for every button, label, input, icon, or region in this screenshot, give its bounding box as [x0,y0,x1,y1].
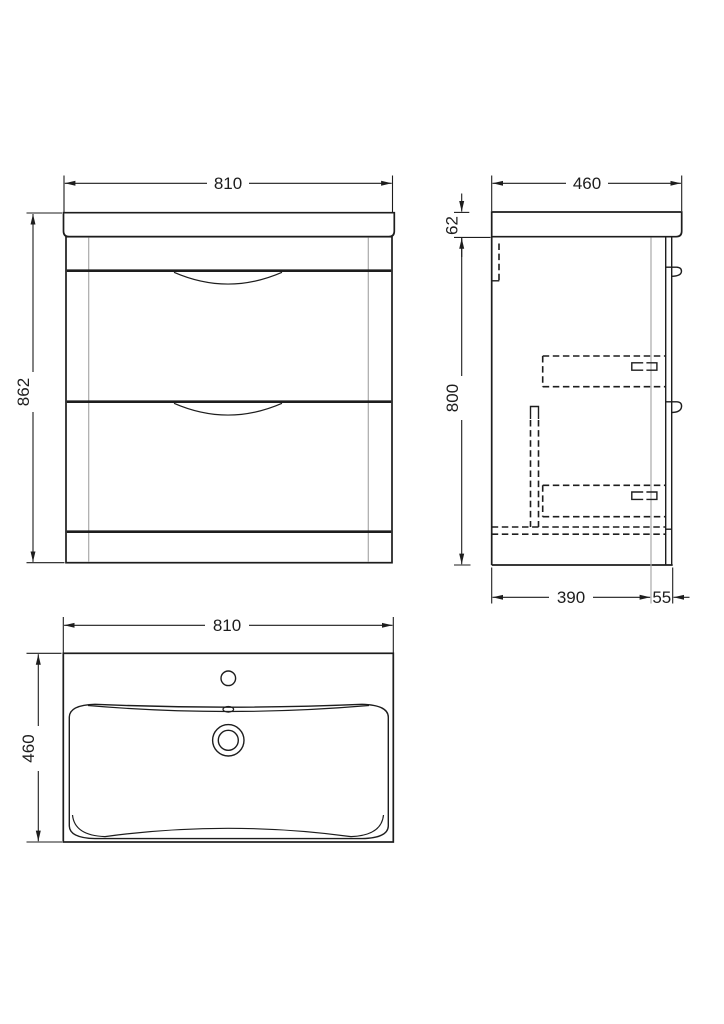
front-drawer-handle-recess-1 [174,272,282,284]
side-depth-label: 390 [557,588,585,607]
front-cabinet-body [66,237,392,563]
side-hidden-pipe-cap [531,407,539,420]
side-drawerfront-label: 55 [652,588,671,607]
basin-plan-view: 810 460 [19,616,393,842]
plan-width-label: 810 [213,616,241,635]
plan-basin-outer-edge [63,653,393,842]
front-worktop [64,213,395,237]
front-drawer-handle-recess-2 [174,403,282,415]
side-width-label: 460 [573,174,601,193]
side-handle-profile-2 [666,402,682,413]
vanity-technical-drawing: 810 862 460 62 [0,0,724,1024]
side-runner-clip-2-right [646,492,657,499]
plan-drain-inner [218,730,238,750]
plan-tap-hole [221,671,236,686]
side-runner-clip-1-left [632,363,643,370]
side-runner-clip-2-left [632,492,643,499]
side-runner-clip-1-right [646,363,657,370]
side-handle-profile-1 [666,267,682,276]
side-worktop [492,212,682,237]
front-elevation-view: 810 862 [14,174,394,563]
front-height-label: 862 [14,378,33,406]
plan-drain-outer [213,725,244,756]
drawing-canvas: 810 862 460 62 [0,0,724,1024]
side-worktop-height-label: 62 [443,216,462,235]
plan-depth-label: 460 [19,734,38,762]
side-cabinet-height-label: 800 [443,384,462,412]
plan-bowl-front-wall-curve [73,815,384,837]
front-width-label: 810 [214,174,242,193]
side-elevation-view: 460 62 800 [443,174,690,607]
